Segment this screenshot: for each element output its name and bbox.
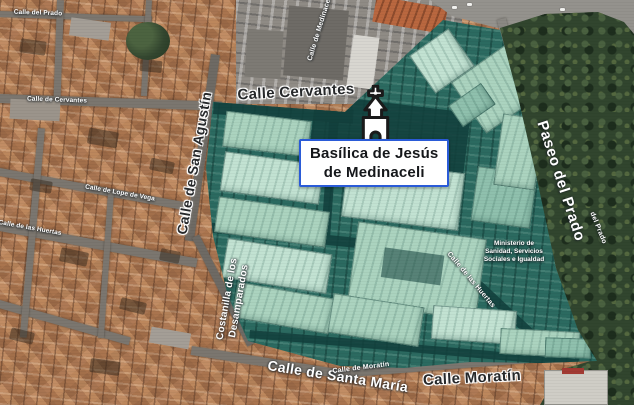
poi-name-line2: de Medinaceli	[310, 163, 438, 182]
building-block	[244, 29, 283, 79]
poi-name-line1: Basílica de Jesús	[310, 144, 438, 163]
courtyard-patch	[139, 59, 162, 73]
satellite-map-viewport[interactable]: Calle Cervantes Calle de San Agustín Pas…	[0, 0, 634, 405]
street-segment	[98, 192, 114, 338]
roof-patch	[562, 368, 584, 374]
building-block	[545, 337, 592, 359]
tree-patch	[126, 22, 170, 60]
courtyard-patch	[87, 128, 119, 149]
roof-patch	[69, 17, 111, 40]
car-dot	[467, 3, 472, 6]
courtyard-patch	[89, 358, 121, 376]
courtyard-patch	[119, 297, 147, 315]
car-dot	[560, 8, 565, 11]
courtyard-patch	[19, 38, 47, 55]
building-block	[283, 6, 349, 81]
courtyard-patch	[149, 158, 175, 175]
courtyard-patch	[9, 327, 35, 344]
courtyard-patch	[159, 248, 181, 264]
street-label-moratin: Calle Moratín	[423, 367, 522, 389]
car-dot	[452, 6, 457, 9]
roof-patch	[149, 327, 191, 350]
building-block	[544, 370, 608, 405]
roof-patch	[10, 99, 61, 122]
courtyard-patch	[59, 247, 89, 267]
poi-label-basilica[interactable]: Basílica de Jesús de Medinaceli	[299, 139, 449, 187]
